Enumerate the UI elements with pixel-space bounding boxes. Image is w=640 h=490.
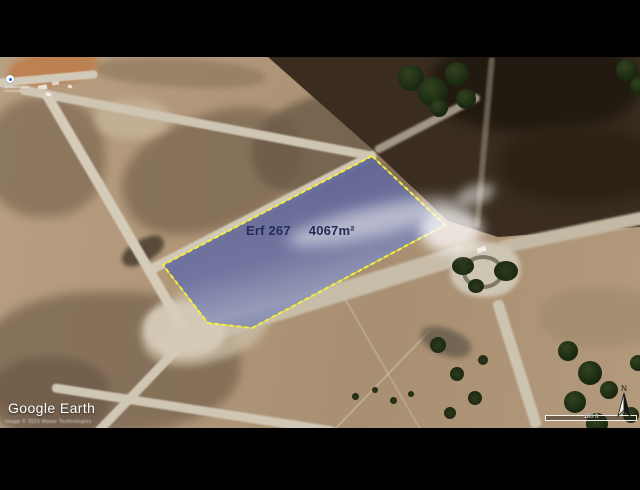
place-marker-icon[interactable] <box>4 75 34 93</box>
tree-cluster <box>564 391 586 413</box>
terrain-patch <box>94 57 265 91</box>
bush <box>478 355 488 365</box>
tree-cluster <box>558 341 578 361</box>
terrain-patch <box>540 287 640 347</box>
parcel-name: Erf 267 <box>246 223 291 238</box>
tree-cluster <box>630 355 640 371</box>
bush <box>408 391 414 397</box>
vehicle <box>68 85 73 89</box>
road <box>492 299 542 428</box>
tree-cluster <box>430 99 448 117</box>
google-earth-screenshot: { "parcel": { "name": "Erf 267", "area":… <box>0 0 640 490</box>
north-label: N <box>621 384 627 393</box>
tree-cluster <box>445 62 469 86</box>
burnt-patch <box>500 127 640 202</box>
letterbox-bottom <box>0 428 640 490</box>
tree-shadow <box>417 321 475 363</box>
bush <box>468 391 482 405</box>
bush <box>444 407 456 419</box>
tree-cluster <box>456 89 476 109</box>
parcel-label: Erf 2674067m² <box>246 223 355 238</box>
bush <box>430 337 446 353</box>
satellite-viewport[interactable]: Erf 2674067m² Google Earth Image © 2023 … <box>0 57 640 428</box>
google-earth-logo: Google Earth <box>8 400 95 416</box>
parcel-area: 4067m² <box>309 223 355 238</box>
tree-cluster <box>578 361 602 385</box>
track <box>334 329 431 428</box>
north-arrow-icon: N <box>612 383 636 419</box>
bush <box>494 261 518 281</box>
bush <box>390 397 397 404</box>
bush <box>450 367 464 381</box>
bush <box>352 393 359 400</box>
bush <box>452 257 474 275</box>
bush <box>468 279 484 293</box>
letterbox-top <box>0 0 640 57</box>
dust-haze <box>420 207 482 253</box>
bush <box>372 387 378 393</box>
attribution-text: Image © 2023 Maxar Technologies <box>5 419 92 425</box>
